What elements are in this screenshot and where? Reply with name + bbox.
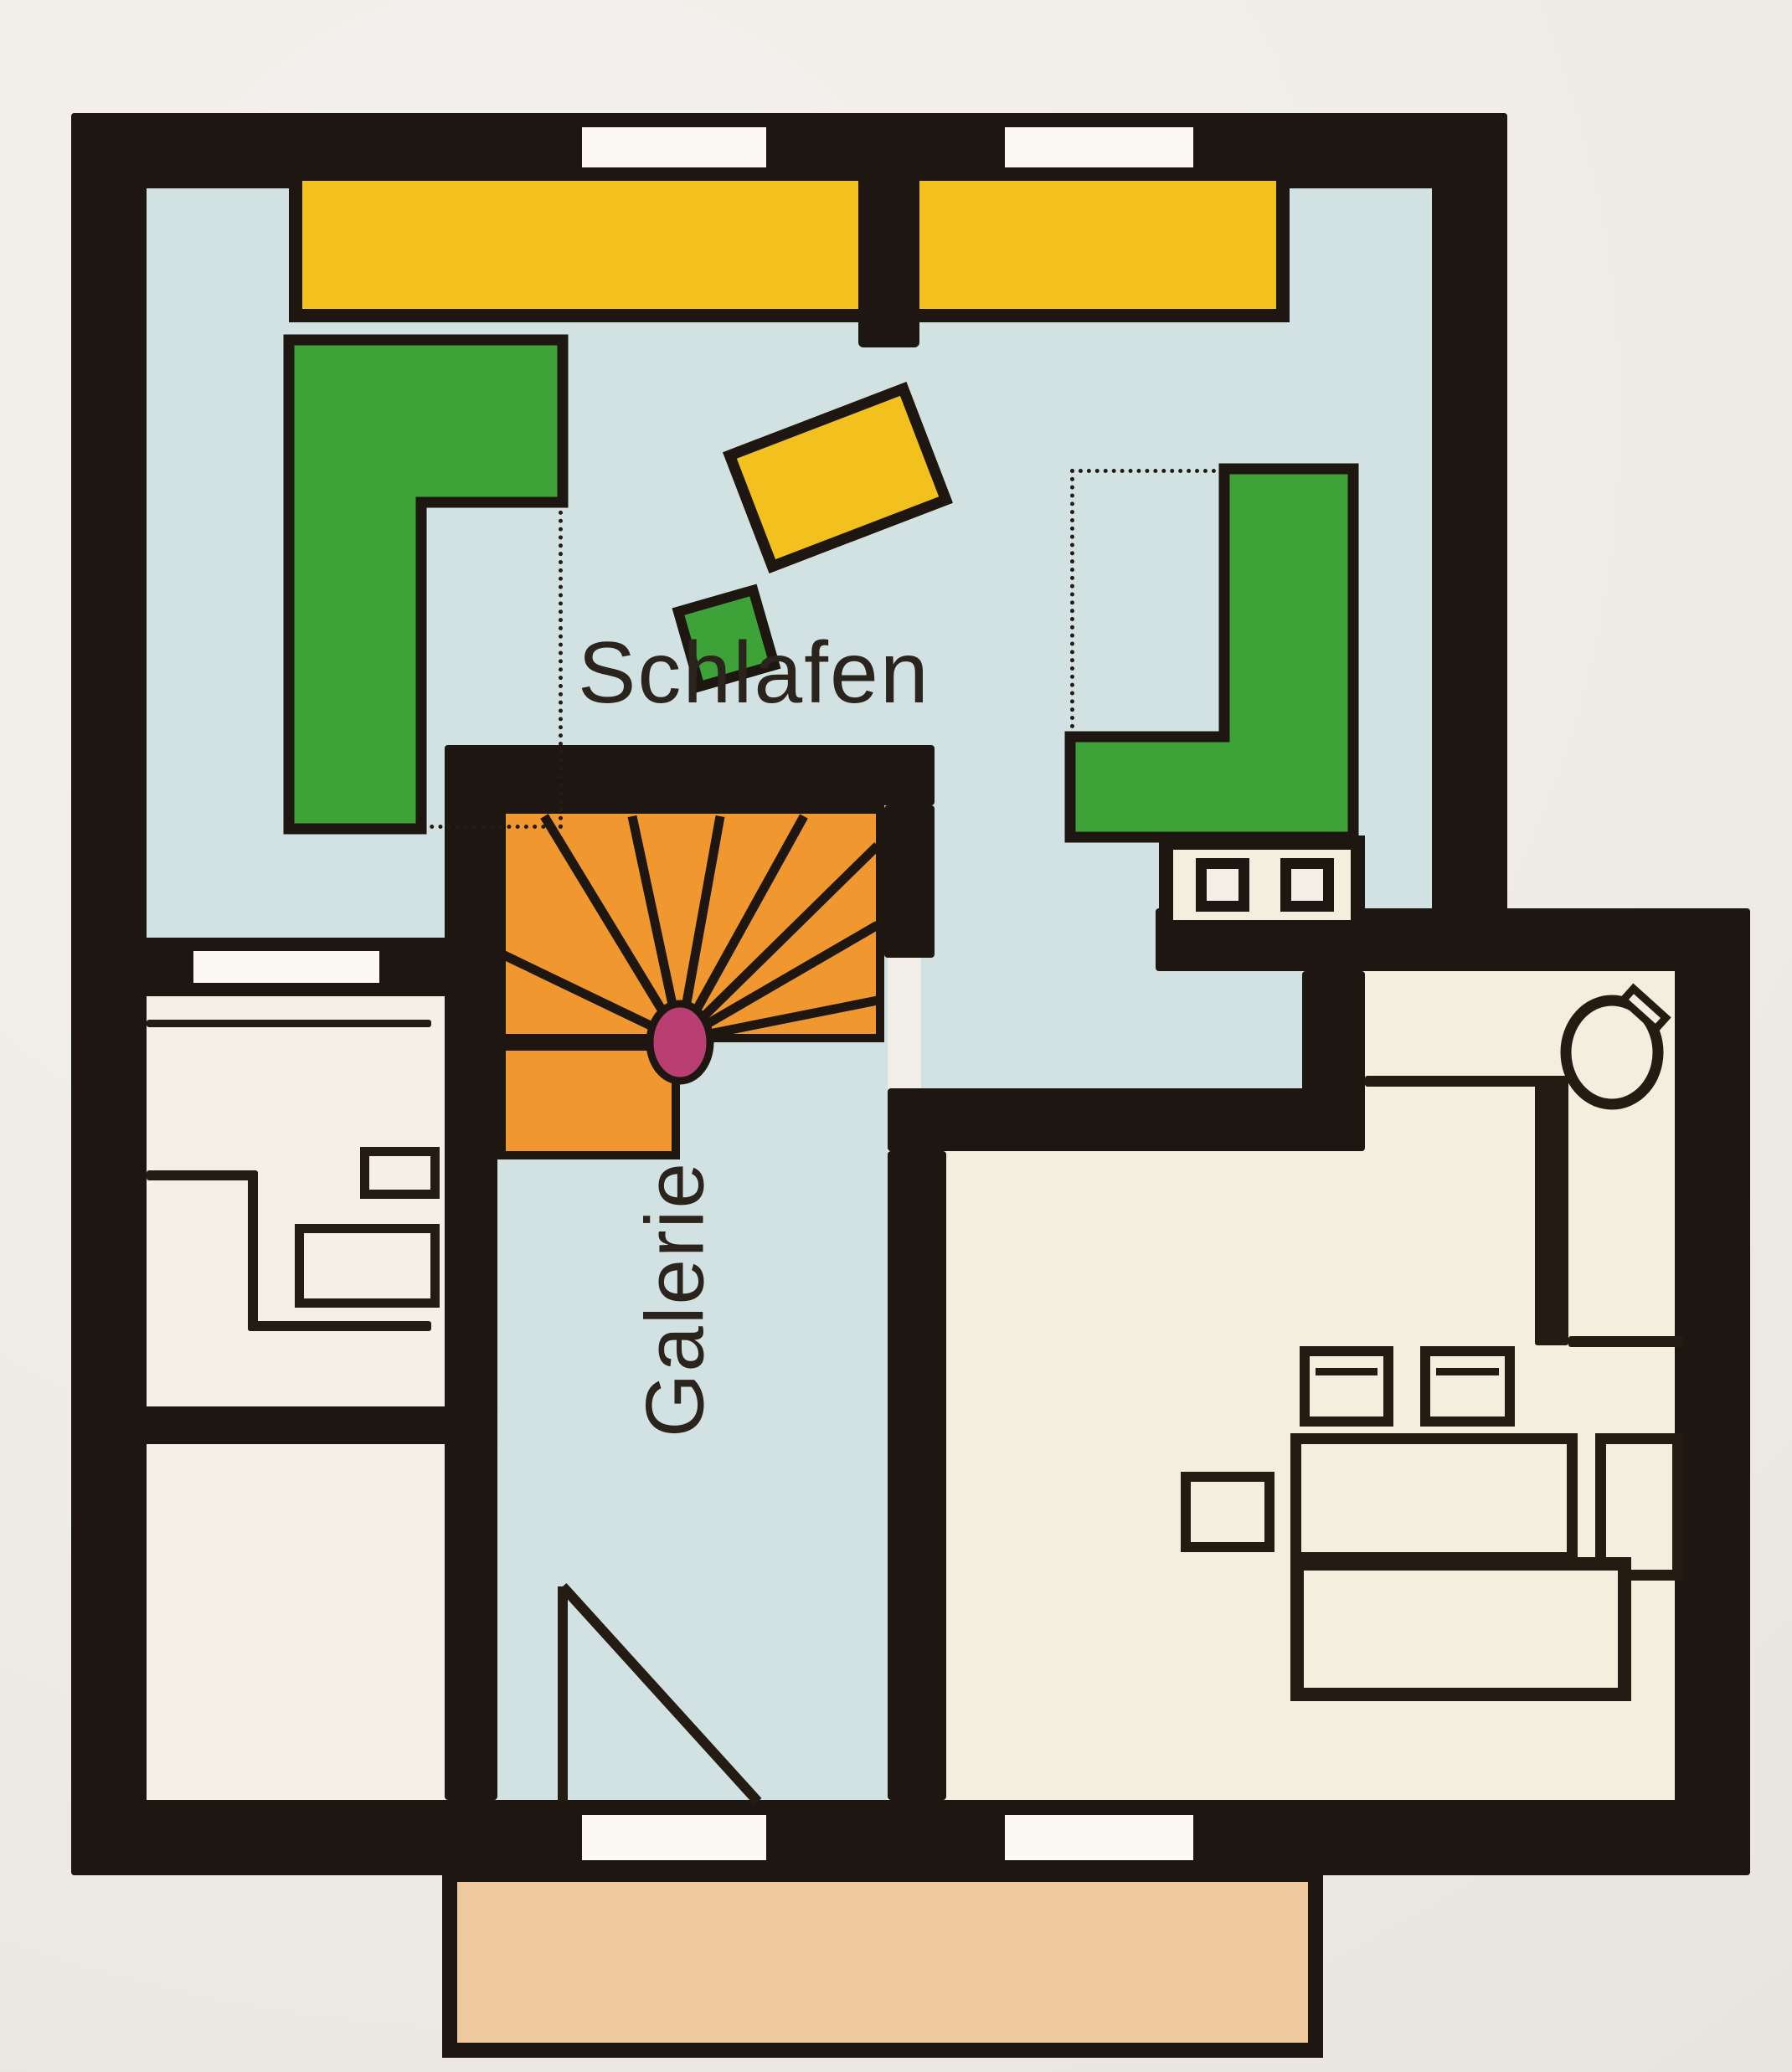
- floor-plan-photo: Schlafen Galerie: [0, 0, 1792, 2072]
- dining-chair-1: [1300, 1346, 1393, 1427]
- dining-chair-3: [1181, 1472, 1274, 1552]
- wardrobe-bar: [289, 167, 1290, 322]
- dining-table: [1290, 1433, 1578, 1563]
- lower-right-room-nook-floor: [1365, 971, 1683, 1151]
- sink-right: [1280, 858, 1334, 912]
- window-bottom-left: [582, 1815, 766, 1860]
- counter-line-vertical: [1535, 1076, 1568, 1345]
- room-label-galerie: Galerie: [628, 1161, 723, 1437]
- left-lower-room-floor: [147, 1444, 445, 1800]
- wall-bottom: [71, 1800, 1750, 1875]
- fixture-line-vertical: [248, 1170, 258, 1331]
- low-platform: [1290, 1557, 1631, 1701]
- counter-line-horizontal: [1365, 1076, 1541, 1087]
- window-bottom-right: [1005, 1815, 1193, 1860]
- fixture-line-top: [147, 1170, 255, 1180]
- wall-stair-right: [884, 805, 935, 958]
- bathroom-sink: [360, 1147, 440, 1199]
- bathroom-shower: [295, 1224, 440, 1308]
- room-label-schlafen: Schlafen: [578, 624, 930, 723]
- chair-back-line: [1436, 1368, 1499, 1375]
- door-left-room: [193, 951, 379, 983]
- left-upper-room-floor: [147, 996, 445, 1406]
- fixture-line-bottom: [248, 1321, 431, 1331]
- washbasin-unit: [1159, 835, 1365, 934]
- wall-leftrooms-divider: [71, 1406, 497, 1444]
- balcony: [442, 1867, 1323, 2058]
- dashed-bed-outline-left: [421, 502, 563, 829]
- dashed-bed-outline-right: [1070, 469, 1224, 737]
- wall-right-upper: [1432, 113, 1507, 971]
- counter-line-to-wall: [1568, 1336, 1683, 1347]
- chair-back-line: [1316, 1368, 1377, 1375]
- stair-upper-flight: [497, 805, 884, 1042]
- wall-galerie-right: [888, 1151, 946, 1800]
- chimney-stub: [858, 113, 919, 347]
- dining-chair-2: [1420, 1346, 1515, 1427]
- wall-right-lower: [1675, 908, 1750, 1875]
- stair-lower-flight: [497, 1042, 680, 1159]
- closet-front-line: [147, 1020, 431, 1027]
- wall-room-left-vertical: [1302, 971, 1365, 1151]
- wall-leftrooms-right: [445, 745, 497, 1800]
- wall-room-left-horizontal: [888, 1088, 1365, 1151]
- sink-left: [1196, 858, 1249, 912]
